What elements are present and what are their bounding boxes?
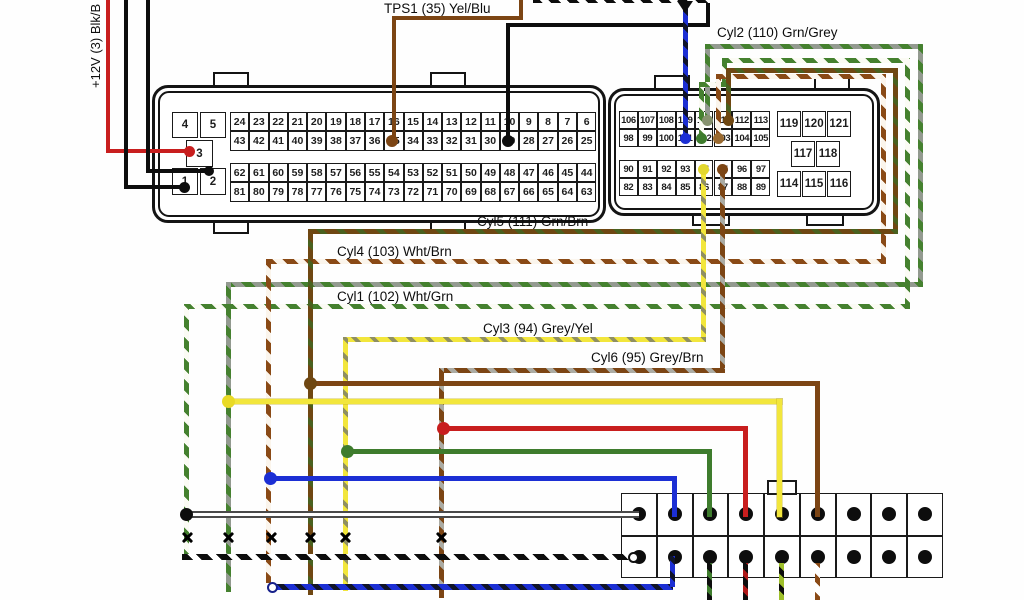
pin-cell: 52 [423, 163, 442, 182]
cyl1-wire-label: Cyl1 (102) Wht/Grn [337, 289, 453, 304]
wire-connection-dot [723, 115, 734, 126]
pin-cell: 12 [461, 112, 480, 131]
wire-segment [893, 68, 898, 234]
pin-cell: 85 [676, 178, 695, 196]
wire-connection-dot [437, 422, 450, 435]
wire-segment [701, 167, 706, 342]
open-terminal-circle [267, 582, 278, 593]
pin-cell: 99 [638, 129, 657, 147]
wire-segment [506, 23, 510, 143]
open-terminal-circle [628, 552, 639, 563]
cyl2-wire-label: Cyl2 (110) Grn/Grey [717, 25, 838, 40]
pin-cell: 11 [481, 112, 500, 131]
wire-segment [392, 16, 523, 20]
wire-connection-dot [180, 508, 193, 521]
wiring-diagram-stage: +12V (3) Blk/B TPS1 (35) Yel/Blu Cyl2 (1… [0, 0, 1024, 600]
wire-segment [905, 58, 910, 309]
no-connection-x-mark [222, 531, 235, 544]
no-connection-x-mark [339, 531, 352, 544]
pin-cell: 76 [326, 182, 345, 201]
terminal-dot [811, 550, 825, 564]
wire-segment [226, 282, 923, 287]
pin-cell: 108 [657, 111, 676, 129]
pin-cell: 82 [619, 178, 638, 196]
wire-connection-dot [713, 133, 724, 144]
wire-segment [815, 381, 820, 517]
wire-segment [672, 476, 677, 517]
no-connection-x-mark [304, 531, 317, 544]
wire-segment [720, 167, 725, 373]
tps1-wire-label: TPS1 (35) Yel/Blu [384, 1, 491, 16]
pin-cell: 18 [346, 112, 365, 131]
pin-cell: 89 [751, 178, 770, 196]
wire-connection-dot [698, 164, 709, 175]
wire-segment [722, 58, 910, 63]
wire-segment [228, 399, 782, 404]
pin-cell: 41 [269, 131, 288, 150]
wire-connection-dot [264, 472, 277, 485]
pin-cell: 116 [827, 171, 851, 197]
pin-cell: 93 [676, 160, 695, 178]
pin-cell: 107 [638, 111, 657, 129]
pin-cell: 120 [802, 111, 826, 137]
wire-connection-dot [502, 135, 514, 147]
pin-cell: 42 [249, 131, 268, 150]
wire-segment [392, 16, 396, 143]
pin-cell: 98 [619, 129, 638, 147]
wire-segment [124, 0, 128, 187]
pin-cell: 88 [732, 178, 751, 196]
cyl4-wire-label: Cyl4 (103) Wht/Brn [337, 244, 452, 259]
pin-cell: 73 [384, 182, 403, 201]
pin-cell: 24 [230, 112, 249, 131]
pin-cell: 40 [288, 131, 307, 150]
pin-cell: 77 [307, 182, 326, 201]
wire-connection-dot [680, 133, 691, 144]
pin-cell: 65 [538, 182, 557, 201]
pin-cell: 62 [230, 163, 249, 182]
no-connection-x-mark [265, 531, 278, 544]
wire-segment [268, 476, 677, 481]
wire-segment [726, 68, 898, 73]
pin-cell: 19 [326, 112, 345, 131]
wire-segment [506, 23, 710, 27]
pin-cell: 115 [802, 171, 826, 197]
pin-cell: 4 [172, 112, 198, 138]
pin-cell: 37 [346, 131, 365, 150]
pin-cell: 80 [249, 182, 268, 201]
wire-segment [707, 449, 712, 517]
pin-cell: 70 [442, 182, 461, 201]
pin-cell: 46 [538, 163, 557, 182]
pin-cell: 117 [791, 141, 815, 167]
pin-cell: 64 [558, 182, 577, 201]
wire-segment [743, 426, 748, 517]
pin-cell: 53 [404, 163, 423, 182]
wire-segment [311, 381, 820, 386]
wire-connection-dot [179, 182, 190, 193]
cyl6-wire-label: Cyl6 (95) Grey/Brn [591, 350, 704, 365]
wire-segment [918, 44, 923, 287]
wire-segment [439, 368, 725, 373]
pin-cell: 25 [577, 131, 596, 150]
pin-cell: 57 [326, 163, 345, 182]
pin-cell: 9 [519, 112, 538, 131]
wire-connection-dot [702, 115, 713, 126]
pin-cell: 54 [384, 163, 403, 182]
wire-segment [705, 44, 923, 49]
wire-segment [343, 337, 706, 342]
pin-cell: 68 [481, 182, 500, 201]
pin-cell: 36 [365, 131, 384, 150]
pin-cell: 74 [365, 182, 384, 201]
pin-cell: 32 [442, 131, 461, 150]
pin-cell: 45 [558, 163, 577, 182]
pin-cell: 51 [442, 163, 461, 182]
pin-cell: 59 [288, 163, 307, 182]
pin-cell: 55 [365, 163, 384, 182]
wire-connection-dot [696, 133, 707, 144]
terminal-dot [847, 507, 861, 521]
no-connection-x-mark [435, 531, 448, 544]
pin-cell: 26 [558, 131, 577, 150]
pin-cell: 112 [732, 111, 751, 129]
wire-segment [343, 337, 348, 591]
pin-cell: 48 [500, 163, 519, 182]
pin-cell: 23 [249, 112, 268, 131]
pin-cell: 72 [404, 182, 423, 201]
wire-segment [146, 0, 150, 171]
pin-cell: 17 [365, 112, 384, 131]
wire-connection-dot [304, 377, 317, 390]
wire-segment [345, 449, 712, 454]
pin-cell: 118 [816, 141, 840, 167]
wire-segment [683, 3, 688, 140]
pin-cell: 58 [307, 163, 326, 182]
wire-segment [726, 68, 731, 122]
pin-cell: 7 [558, 112, 577, 131]
terminal-block-notch [767, 480, 797, 495]
pin-cell: 31 [461, 131, 480, 150]
pin-cell: 78 [288, 182, 307, 201]
wire-segment [184, 304, 910, 309]
wire-segment [743, 563, 748, 600]
pin-cell: 22 [269, 112, 288, 131]
pin-cell: 113 [751, 111, 770, 129]
pin-cell: 39 [307, 131, 326, 150]
wire-segment [707, 563, 712, 600]
cyl3-wire-label: Cyl3 (94) Grey/Yel [483, 321, 593, 336]
pin-cell: 69 [461, 182, 480, 201]
pin-cell: 8 [538, 112, 557, 131]
pin-cell: 63 [577, 182, 596, 201]
wire-segment [670, 556, 675, 587]
wire-segment [187, 511, 639, 518]
wire-segment [881, 74, 886, 264]
pin-cell: 61 [249, 163, 268, 182]
pin-cell: 50 [461, 163, 480, 182]
pin-cell: 60 [269, 163, 288, 182]
cyl5-wire-label: Cyl5 (111) Grn/Brn [477, 214, 588, 229]
pin-cell: 84 [657, 178, 676, 196]
pin-cell: 27 [538, 131, 557, 150]
pin-cell: 67 [500, 182, 519, 201]
wire-segment [779, 563, 784, 600]
wire-connection-dot [184, 146, 195, 157]
pin-cell: 43 [230, 131, 249, 150]
wire-connection-dot [222, 395, 235, 408]
wire-arrow-icon [677, 1, 693, 13]
wire-segment [441, 426, 748, 431]
wire-segment [716, 74, 721, 140]
pin-cell: 91 [638, 160, 657, 178]
pin-cell: 106 [619, 111, 638, 129]
pin-cell: 38 [326, 131, 345, 150]
ecu-connector-a [152, 85, 606, 223]
wire-segment [184, 304, 189, 560]
wire-segment [273, 584, 673, 590]
terminal-dot [775, 550, 789, 564]
pin-cell: 71 [423, 182, 442, 201]
pin-cell: 5 [200, 112, 226, 138]
wire-segment [124, 185, 186, 189]
pin-cell: 104 [732, 129, 751, 147]
pin-cell: 83 [638, 178, 657, 196]
pin-cell: 75 [346, 182, 365, 201]
pin-cell: 30 [481, 131, 500, 150]
wire-segment [716, 74, 886, 79]
pin-cell: 90 [619, 160, 638, 178]
pin-cell: 81 [230, 182, 249, 201]
no-connection-x-mark [181, 531, 194, 544]
wire-connection-dot [717, 164, 728, 175]
pin-cell: 44 [577, 163, 596, 182]
pin-cell: 66 [519, 182, 538, 201]
wire-segment [777, 399, 782, 517]
wire-segment [182, 554, 632, 560]
pin-cell: 114 [777, 171, 801, 197]
pin-cell: 13 [442, 112, 461, 131]
supply-wire-label: +12V (3) Blk/B [88, 0, 103, 88]
wire-segment [266, 259, 886, 264]
wire-segment [226, 282, 231, 592]
wire-segment [308, 229, 898, 234]
pin-cell: 96 [732, 160, 751, 178]
pin-cell: 34 [404, 131, 423, 150]
wire-segment [146, 169, 211, 173]
pin-cell: 121 [827, 111, 851, 137]
pin-cell: 47 [519, 163, 538, 182]
pin-cell: 28 [519, 131, 538, 150]
wire-connection-dot [341, 445, 354, 458]
wire-segment [699, 82, 704, 140]
pin-cell: 119 [777, 111, 801, 137]
pin-cell: 15 [404, 112, 423, 131]
wire-segment [106, 0, 110, 151]
pin-cell: 56 [346, 163, 365, 182]
terminal-dot [847, 550, 861, 564]
pin-cell: 6 [577, 112, 596, 131]
wire-segment [815, 563, 820, 600]
pin-cell: 21 [288, 112, 307, 131]
pin-cell: 79 [269, 182, 288, 201]
pin-cell: 97 [751, 160, 770, 178]
wire-connection-dot [386, 135, 398, 147]
pin-cell: 92 [657, 160, 676, 178]
wire-connection-dot [204, 166, 214, 176]
pin-cell: 20 [307, 112, 326, 131]
pin-cell: 33 [423, 131, 442, 150]
pin-cell: 14 [423, 112, 442, 131]
pin-cell: 100 [657, 129, 676, 147]
pin-cell: 49 [481, 163, 500, 182]
pin-cell: 105 [751, 129, 770, 147]
